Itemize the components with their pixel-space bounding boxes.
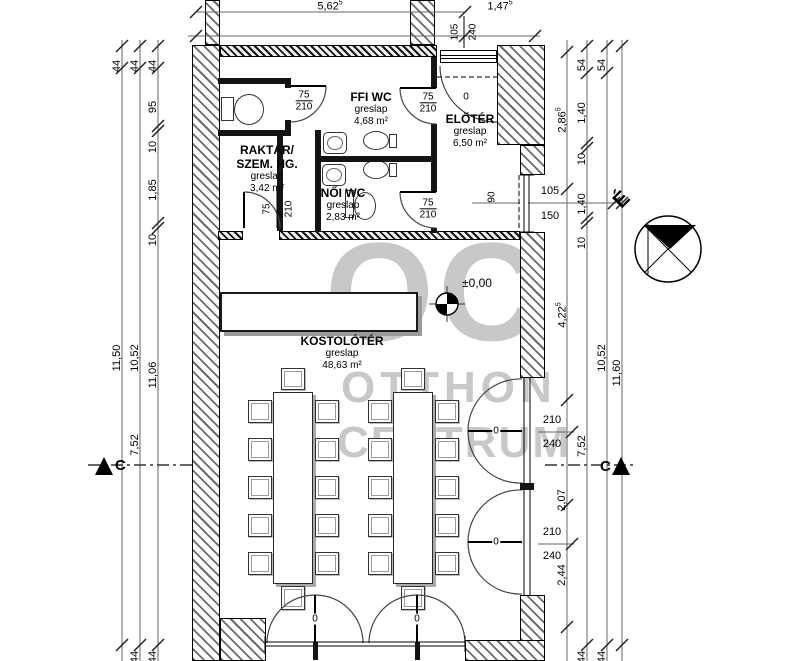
- chair: [368, 438, 392, 461]
- window-tag-w: 105: [541, 185, 559, 197]
- wall-eloter-left-b: [431, 124, 437, 192]
- dim-right-overall: 11,60: [611, 360, 623, 387]
- wall-wc-block-south-right: [279, 231, 520, 240]
- wall-ffi-noi-divider: [315, 156, 437, 162]
- dim-right: 2,44: [556, 564, 568, 585]
- wall-top-band-left: [220, 45, 437, 57]
- chair: [315, 514, 339, 537]
- entry-tag-w: 105: [450, 24, 461, 41]
- wall-stall-top: [218, 78, 291, 84]
- chair: [368, 476, 392, 499]
- wall-left-pier: [205, 0, 220, 45]
- wall-bottom-left: [220, 618, 266, 661]
- chair: [435, 514, 459, 537]
- wall-topright-corner: [497, 45, 545, 145]
- room-label-raktar: RAKTÁR/ SZEM. HG. greslap 3,42 m²: [236, 143, 297, 195]
- dim-left: 10: [147, 234, 159, 246]
- floor-plan: OC OTTHON CENTRUM: [0, 0, 786, 661]
- chair: [315, 552, 339, 575]
- dim-right: 44: [596, 651, 608, 661]
- chair: [281, 586, 305, 610]
- chair: [401, 368, 425, 390]
- counter: [220, 292, 418, 332]
- chair: [368, 514, 392, 537]
- dim-left: 1,85: [147, 179, 159, 200]
- dim-left: 10: [147, 141, 159, 153]
- glassdoor-b-tag-h: 240: [543, 550, 561, 562]
- dim-left: 44: [147, 60, 159, 72]
- glassdoor-b-tag-w: 210: [543, 526, 561, 538]
- entry-door-panel: [440, 50, 497, 63]
- chair: [248, 514, 272, 537]
- door-zero-bottom-2: 0: [413, 614, 421, 625]
- wall-top-pier: [410, 0, 435, 45]
- chair: [435, 438, 459, 461]
- wall-left: [192, 45, 220, 661]
- door-tag-raktar-h: 210: [284, 201, 295, 218]
- sink-noi: [322, 164, 346, 186]
- chair: [248, 438, 272, 461]
- door-zero-bottom-1: 0: [311, 614, 319, 625]
- room-label-eloter: ELŐTÉR greslap 6,50 m²: [446, 112, 495, 150]
- chair: [315, 400, 339, 423]
- dim-right: 2,07: [556, 489, 568, 510]
- urinal-tank-ffi-1: [389, 134, 397, 148]
- chair: [435, 476, 459, 499]
- sink-ffi: [323, 132, 347, 154]
- wall-wc-block-south-left: [218, 231, 243, 240]
- section-label-left: C: [115, 457, 126, 474]
- dim-left-overall: 10,52: [129, 344, 141, 372]
- dim-right-overall: 10,52: [596, 344, 608, 372]
- chair: [368, 552, 392, 575]
- glassdoor-a-tag-h: 240: [543, 438, 561, 450]
- dim-top-562: 5,625: [317, 0, 342, 12]
- glassdoor-a-tag-w: 210: [543, 414, 561, 426]
- door-tag-ffi: 75210: [420, 91, 437, 114]
- chair: [435, 552, 459, 575]
- chair: [248, 552, 272, 575]
- dim-left-overall: 11,06: [147, 362, 159, 389]
- dim-right: 4,225: [556, 302, 569, 327]
- dim-top-147: 1,475: [487, 0, 512, 12]
- dim-left: 44: [111, 60, 123, 72]
- urinal-ffi-2: [363, 160, 389, 179]
- door-zero-entry: 0: [462, 92, 470, 103]
- dim-left: 44: [129, 651, 141, 661]
- chair: [315, 438, 339, 461]
- entry-tag-h: 240: [468, 24, 479, 41]
- toilet-bowl-stall: [234, 94, 264, 125]
- room-label-ffi-wc: FFI WC greslap 4,68 m²: [350, 90, 391, 128]
- dim-right: 10: [576, 237, 588, 249]
- dim-right: 2,865: [556, 107, 569, 132]
- toilet-tank-stall: [221, 97, 234, 121]
- compass-north-label: É: [609, 187, 636, 214]
- dim-right: 1,40: [576, 102, 588, 123]
- wall-eloter-left-c: [431, 228, 437, 233]
- dim-left-overall: 11,50: [111, 345, 123, 372]
- window-tag-h: 150: [541, 210, 559, 222]
- urinal-tank-ffi-2: [389, 163, 397, 177]
- wall-stall-right-a: [285, 78, 291, 88]
- door-tag-noi: 75210: [420, 197, 437, 220]
- dim-left: 7,52: [129, 434, 141, 455]
- table-2: [393, 392, 433, 584]
- dim-left: 44: [147, 651, 159, 661]
- dim-right: 1,40: [576, 193, 588, 214]
- wall-right-middle: [520, 232, 545, 378]
- dim-right: 54: [576, 59, 588, 71]
- dim-right: 10: [576, 153, 588, 165]
- level-marker-label: ±0,00: [462, 276, 492, 290]
- chair: [248, 476, 272, 499]
- wall-right-upper: [520, 145, 545, 175]
- room-label-noi-wc: NŐI WC greslap 2,83 m²: [321, 186, 366, 224]
- dim-right: 44: [576, 651, 588, 661]
- chair: [315, 476, 339, 499]
- dim-left: 95: [147, 101, 159, 113]
- door-zero-right-b: 0: [492, 537, 500, 548]
- chair: [401, 586, 425, 610]
- door-tag-raktar-w: 75: [262, 203, 273, 214]
- room-label-kostoloter: KOSTOLÓTÉR greslap 48,63 m²: [300, 334, 383, 372]
- dim-right: 7,52: [576, 435, 588, 456]
- table-1: [273, 392, 313, 584]
- window-sill-height: 90: [487, 191, 498, 202]
- chair: [368, 400, 392, 423]
- wall-eloter-left-a: [431, 57, 437, 88]
- urinal-ffi-1: [363, 131, 389, 150]
- wall-bottom-right: [465, 640, 545, 661]
- section-label-right: C: [600, 458, 611, 475]
- chair: [435, 400, 459, 423]
- door-zero-right-a: 0: [492, 426, 500, 437]
- door-tag-stall: 75210: [296, 89, 313, 112]
- dim-right: 54: [596, 59, 608, 71]
- chair: [248, 400, 272, 423]
- dim-left: 44: [129, 60, 141, 72]
